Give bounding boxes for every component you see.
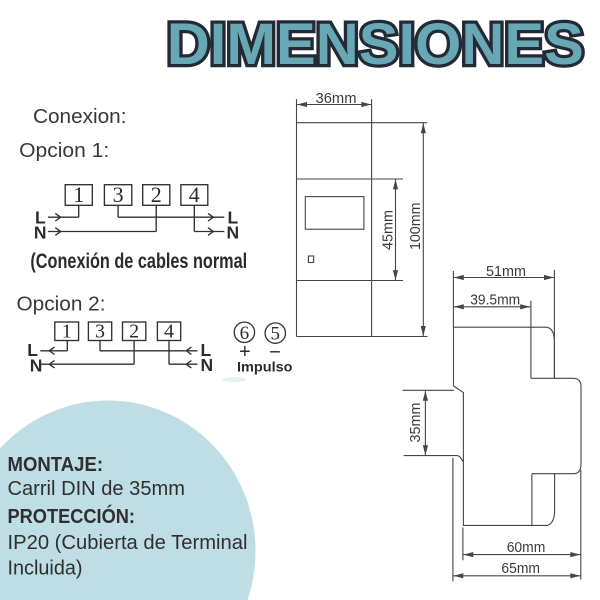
svg-text:35mm: 35mm [408, 403, 424, 443]
svg-text:N: N [201, 355, 214, 375]
svg-text:(Conexión de cables normal: (Conexión de cables normal [30, 250, 247, 273]
svg-text:39.5mm: 39.5mm [470, 293, 520, 309]
svg-text:65mm: 65mm [501, 561, 540, 577]
svg-text:2: 2 [129, 321, 139, 343]
svg-text:45mm: 45mm [381, 210, 397, 250]
svg-text:N: N [227, 223, 240, 243]
svg-text:4: 4 [164, 321, 174, 343]
svg-text:51mm: 51mm [486, 264, 526, 280]
svg-text:DIMENSIONES: DIMENSIONES [167, 12, 584, 77]
svg-text:100mm: 100mm [408, 203, 424, 251]
svg-text:N: N [30, 356, 43, 376]
svg-text:36mm: 36mm [316, 91, 357, 107]
svg-text:4: 4 [189, 182, 200, 207]
svg-text:Opcion 2:: Opcion 2: [17, 292, 106, 315]
svg-text:3: 3 [113, 182, 124, 207]
svg-text:IP20 (Cubierta de Terminal: IP20 (Cubierta de Terminal [8, 532, 248, 554]
svg-text:Conexion:: Conexion: [33, 106, 127, 128]
svg-text:60mm: 60mm [507, 540, 546, 556]
svg-text:1: 1 [73, 182, 84, 207]
svg-text:2: 2 [151, 182, 162, 207]
svg-text:1: 1 [62, 321, 72, 343]
svg-text:Opcion 1:: Opcion 1: [19, 139, 109, 162]
svg-text:Carril DIN de 35mm: Carril DIN de 35mm [8, 478, 186, 500]
svg-text:PROTECCIÓN:: PROTECCIÓN: [8, 504, 136, 528]
svg-text:MONTAJE:: MONTAJE: [8, 454, 104, 476]
svg-text:3: 3 [95, 321, 105, 343]
svg-text:Impulso: Impulso [237, 359, 293, 374]
svg-text:Incluida): Incluida) [8, 558, 83, 580]
svg-text:N: N [34, 223, 47, 243]
